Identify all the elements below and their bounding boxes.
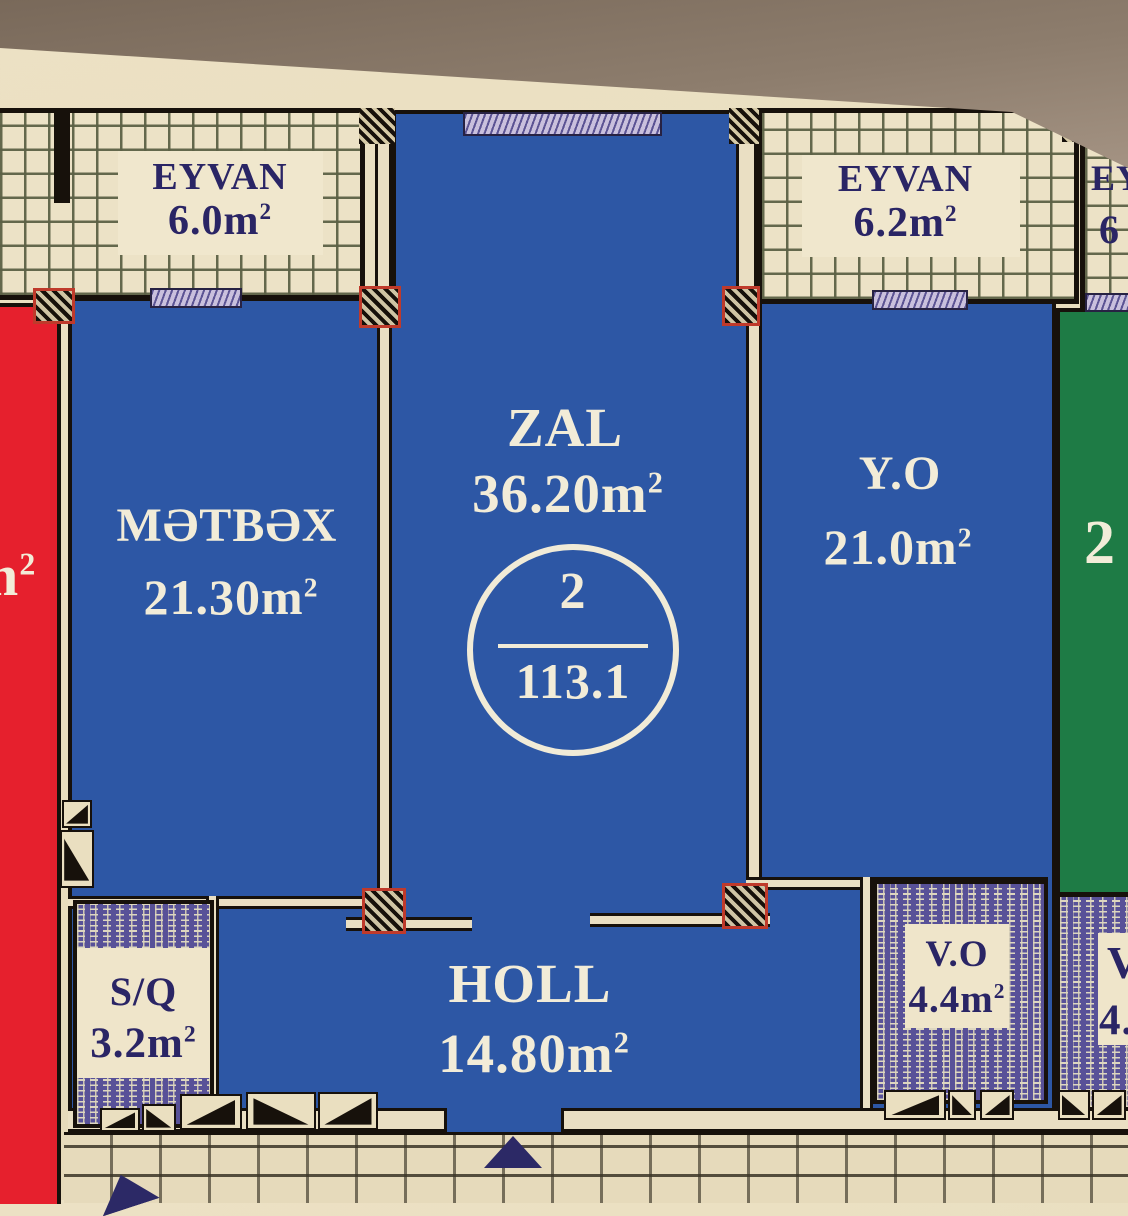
unit-total-area: 113.1 — [473, 656, 673, 706]
door-swing-icon — [180, 1094, 242, 1130]
column-marker — [722, 883, 768, 929]
unit-circle: 2 113.1 — [467, 544, 679, 756]
room-sq-label: S/Q — [77, 972, 210, 1012]
room-vo-far-right: V 4. — [1056, 893, 1128, 1111]
room-vo-far-area: 4. — [1099, 999, 1128, 1042]
room-red-partial: m2 — [0, 303, 61, 1204]
door-swing-icon — [1058, 1090, 1090, 1120]
room-eyvan-right-area: 6.2m2 — [798, 202, 1013, 244]
room-zal-upper — [392, 110, 740, 314]
room-zal-area: 36.20m2 — [400, 466, 736, 521]
wall-zal-yo — [746, 297, 762, 887]
room-holl-area: 14.80m2 — [360, 1026, 708, 1081]
door-swing-icon — [142, 1104, 176, 1132]
door-swing-icon — [884, 1090, 946, 1120]
door-swing-icon — [1092, 1090, 1126, 1120]
door-swing-icon — [246, 1092, 316, 1130]
column-marker — [33, 288, 75, 324]
room-vo: V.O 4.4m2 — [873, 880, 1048, 1104]
door-swing-icon — [62, 800, 92, 828]
room-eyvan-left-area: 6.0m2 — [120, 200, 320, 242]
window-eyvan-right — [872, 290, 968, 310]
room-vo-label: V.O — [905, 936, 1009, 973]
room-metbex-label: MƏTBƏX — [78, 502, 376, 550]
room-holl-label: HOLL — [360, 956, 700, 1011]
door-swing-icon — [318, 1092, 378, 1130]
room-sq-area: 3.2m2 — [77, 1022, 210, 1065]
room-vo-far-label: V — [1107, 941, 1128, 986]
column-marker — [362, 888, 406, 934]
corridor — [64, 1132, 1128, 1203]
unit-circle-divider — [498, 644, 648, 648]
window-green-top — [1085, 293, 1128, 312]
floorplan-photo: { "plan": { "unit_circle": { "number": "… — [0, 0, 1128, 1200]
room-metbex-area: 21.30m2 — [82, 572, 380, 622]
room-eyvan-far-right-area: 6 — [1099, 210, 1120, 250]
wall-vo-left — [860, 877, 873, 1122]
room-yo-label: Y.O — [765, 450, 1035, 498]
sq-hatch-top — [77, 904, 210, 948]
room-eyvan-far-right-label: EY — [1091, 160, 1128, 196]
column-marker — [722, 286, 760, 326]
room-eyvan-right-label: EYVAN — [798, 160, 1013, 198]
window-zal-top — [463, 112, 662, 136]
column-marker — [359, 286, 401, 328]
unit-number: 2 — [473, 566, 673, 618]
wall-junction-hatch — [359, 108, 395, 144]
room-zal-label: ZAL — [400, 400, 730, 455]
door-swing-icon — [948, 1090, 976, 1120]
room-green-partial: 2 — [1056, 308, 1128, 896]
room-red-area: m2 — [0, 547, 36, 605]
room-vo-area: 4.4m2 — [901, 980, 1013, 1019]
room-green-area: 2 — [1084, 512, 1116, 574]
wall-junction-hatch — [729, 108, 759, 144]
room-eyvan-left-label: EYVAN — [120, 158, 320, 196]
door-swing-icon — [100, 1108, 140, 1132]
door-swing-icon — [60, 830, 94, 888]
window-eyvan-left — [150, 288, 242, 308]
room-yo-area: 21.0m2 — [760, 522, 1036, 572]
door-swing-icon — [980, 1090, 1014, 1120]
wall-post — [54, 113, 70, 203]
